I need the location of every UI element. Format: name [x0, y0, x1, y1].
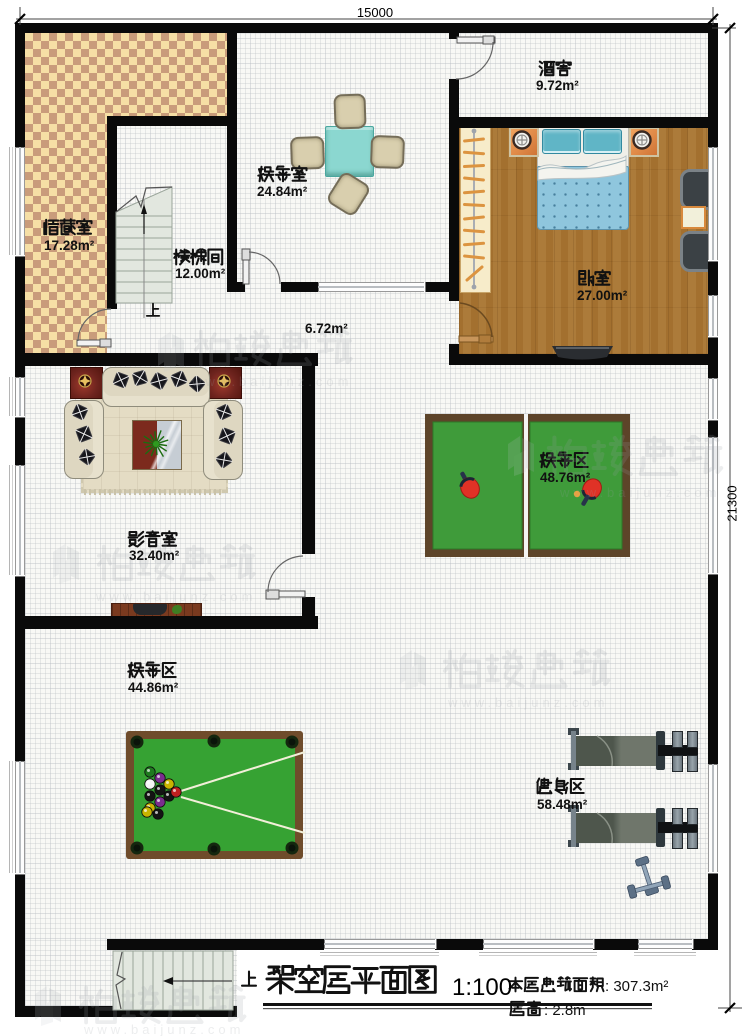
svg-text:www.baijunz.com: www.baijunz.com — [559, 485, 720, 500]
svg-text:www.baijunz.com: www.baijunz.com — [83, 1022, 244, 1036]
svg-text:www.baijunz.com: www.baijunz.com — [191, 374, 352, 389]
svg-text:www.baijunz.com: www.baijunz.com — [447, 695, 608, 710]
svg-text:www.baijunz.com: www.baijunz.com — [95, 589, 256, 604]
